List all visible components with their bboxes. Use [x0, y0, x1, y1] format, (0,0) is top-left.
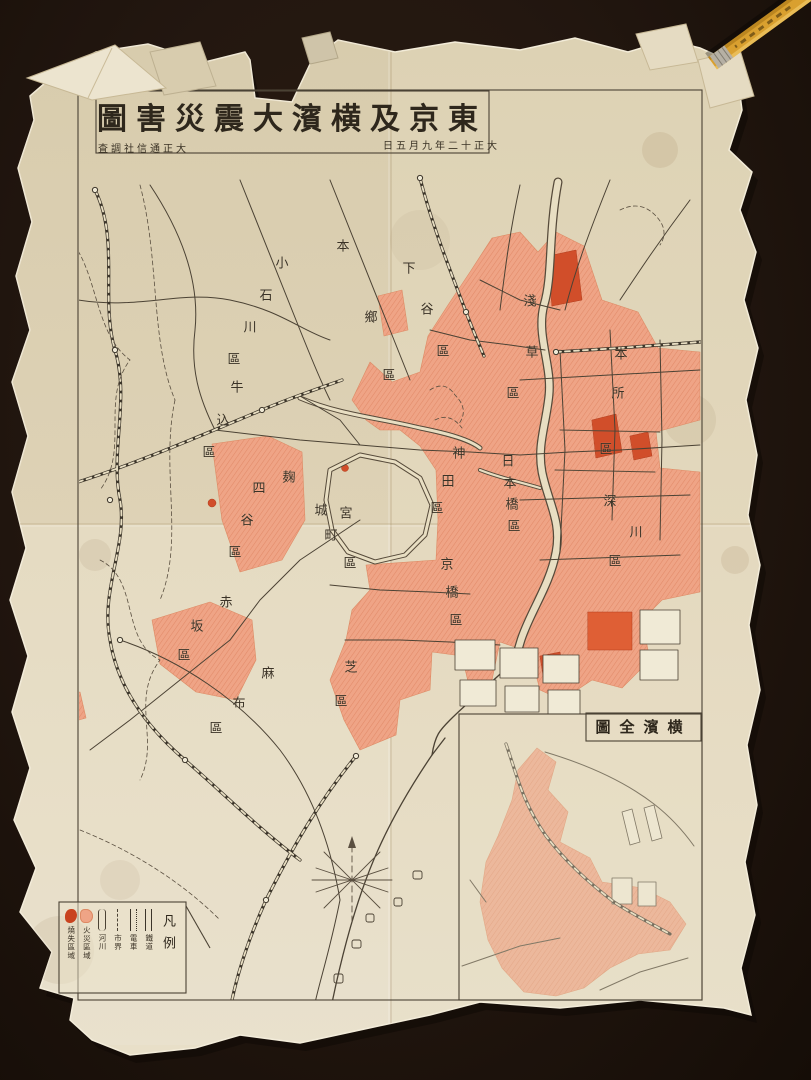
- river-icon: [98, 909, 106, 931]
- ward-label-char: 川: [629, 522, 642, 541]
- burnt-hatched-icon: [80, 909, 93, 923]
- ward-label-char: 川: [243, 317, 256, 336]
- legend-item: 河川: [95, 909, 109, 987]
- ward-label-char: 赤: [219, 592, 232, 611]
- inset-map-title: 圖全濱横: [588, 716, 699, 737]
- ward-label-char: 麻: [261, 663, 274, 682]
- ward-label-char: 區: [608, 551, 621, 570]
- ward-label-char: 區: [209, 718, 222, 737]
- legend-item-label: 燒失區域: [67, 926, 75, 960]
- photo-of-earthquake-damage-map: 圖害災震大濱横及京東 日五月九年二十正大 査調社信通正大 圖全濱横 凡例 鐵道電…: [0, 0, 811, 1080]
- ward-label-char: 四: [252, 478, 265, 497]
- ward-label-char: 谷: [420, 299, 433, 318]
- ward-label-char: 谷: [240, 510, 253, 529]
- ward-label-char: 神: [452, 443, 465, 462]
- ward-label-char: 城: [314, 500, 327, 519]
- ward-label-char: 田: [441, 471, 454, 490]
- ward-label-char: 芝: [344, 657, 357, 676]
- ward-label-char: 宮: [339, 503, 352, 522]
- legend-items: 鐵道電車市界河川火災區域燒失區域: [64, 909, 156, 987]
- ward-label-char: 日: [501, 451, 514, 470]
- ward-label-char: 本: [503, 473, 516, 492]
- ward-label-char: 區: [202, 442, 215, 461]
- ward-label-char: 所: [611, 383, 624, 402]
- ward-label-char: 深: [603, 491, 616, 510]
- ward-label-char: 石: [259, 285, 272, 304]
- boundary-icon: [117, 909, 119, 931]
- ward-label-char: 區: [227, 349, 240, 368]
- map-title: 圖害災震大濱横及京東: [96, 94, 488, 138]
- legend-item-label: 市界: [114, 934, 122, 951]
- ward-label-char: 區: [436, 341, 449, 360]
- legend-item: 鐵道: [142, 909, 156, 987]
- ward-label-char: 京: [440, 554, 453, 573]
- legend-item: 電車: [126, 909, 140, 987]
- legend-item: 市界: [111, 909, 125, 987]
- legend-title: 凡例: [158, 914, 177, 958]
- legend-item-label: 河川: [98, 934, 106, 951]
- burnt-solid-icon: [65, 909, 77, 923]
- ward-label-char: 區: [228, 542, 241, 561]
- legend-item-label: 電車: [130, 934, 138, 951]
- map-credit: 査調社信通正大: [98, 140, 189, 155]
- ward-label-char: 區: [449, 610, 462, 629]
- legend-item-label: 鐵道: [145, 934, 153, 951]
- legend-item: 火災區域: [80, 909, 94, 987]
- ward-label-char: 區: [334, 691, 347, 710]
- map-date: 日五月九年二十正大: [383, 137, 500, 152]
- ward-label-char: 淺: [523, 291, 536, 310]
- legend-item-label: 火災區域: [83, 926, 91, 960]
- tram-icon: [130, 909, 137, 931]
- ward-label-char: 區: [343, 553, 356, 572]
- ward-label-char: 町: [324, 525, 337, 544]
- ward-label-char: 込: [216, 410, 229, 429]
- inset-map-box: [459, 714, 702, 1000]
- ward-label-char: 麹: [282, 467, 295, 486]
- ward-label-char: 區: [177, 645, 190, 664]
- rail-icon: [145, 909, 152, 931]
- ward-label-char: 坂: [190, 616, 203, 635]
- yellow-pencil: [705, 0, 811, 69]
- ward-label-char: 區: [507, 516, 520, 535]
- ward-label-char: 小: [275, 253, 288, 272]
- ward-label-char: 區: [382, 365, 395, 384]
- ward-label-char: 草: [525, 342, 538, 361]
- ward-label-char: 區: [506, 383, 519, 402]
- ward-label-char: 本: [336, 236, 349, 255]
- legend-item: 燒失區域: [64, 909, 78, 987]
- ward-label-char: 布: [232, 693, 245, 712]
- ward-label-char: 區: [599, 439, 612, 458]
- ward-label-char: 區: [430, 498, 443, 517]
- ward-label-char: 本: [614, 344, 627, 363]
- ward-label-char: 橋: [445, 582, 458, 601]
- ward-label-char: 下: [402, 258, 415, 277]
- ward-label-char: 牛: [230, 377, 243, 396]
- ward-label-char: 鄉: [364, 307, 377, 326]
- ward-label-char: 橋: [505, 494, 518, 513]
